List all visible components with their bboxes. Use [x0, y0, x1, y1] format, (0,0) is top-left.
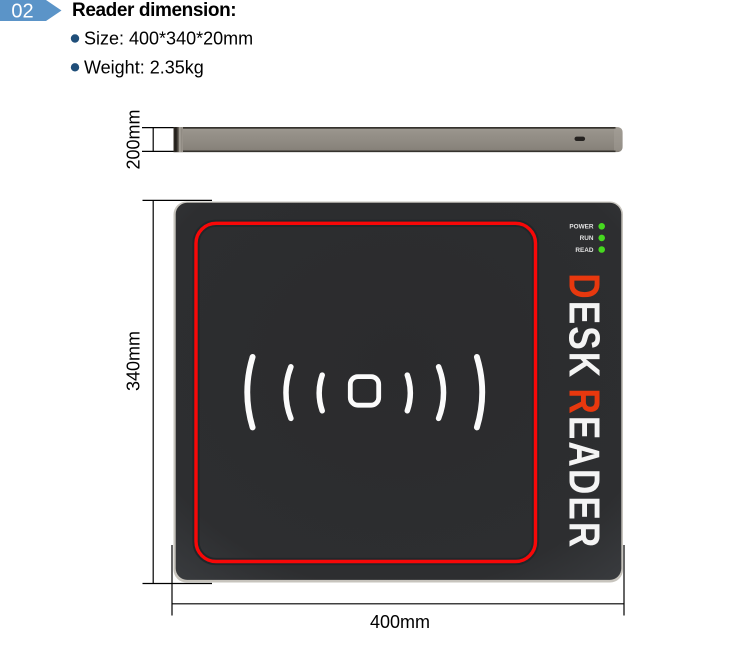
svg-text:RUN: RUN	[580, 235, 594, 242]
svg-text:02: 02	[11, 0, 33, 22]
svg-text:Weight: 2.35kg: Weight: 2.35kg	[84, 58, 204, 78]
svg-text:200mm: 200mm	[124, 109, 144, 169]
svg-text:READ: READ	[575, 247, 593, 254]
svg-text:340mm: 340mm	[124, 331, 144, 391]
svg-text:DESK READER: DESK READER	[560, 273, 609, 549]
svg-text:Reader dimension:: Reader dimension:	[72, 0, 236, 21]
svg-text:400mm: 400mm	[370, 612, 430, 632]
svg-text:POWER: POWER	[569, 224, 594, 231]
svg-text:Size: 400*340*20mm: Size: 400*340*20mm	[84, 29, 253, 49]
